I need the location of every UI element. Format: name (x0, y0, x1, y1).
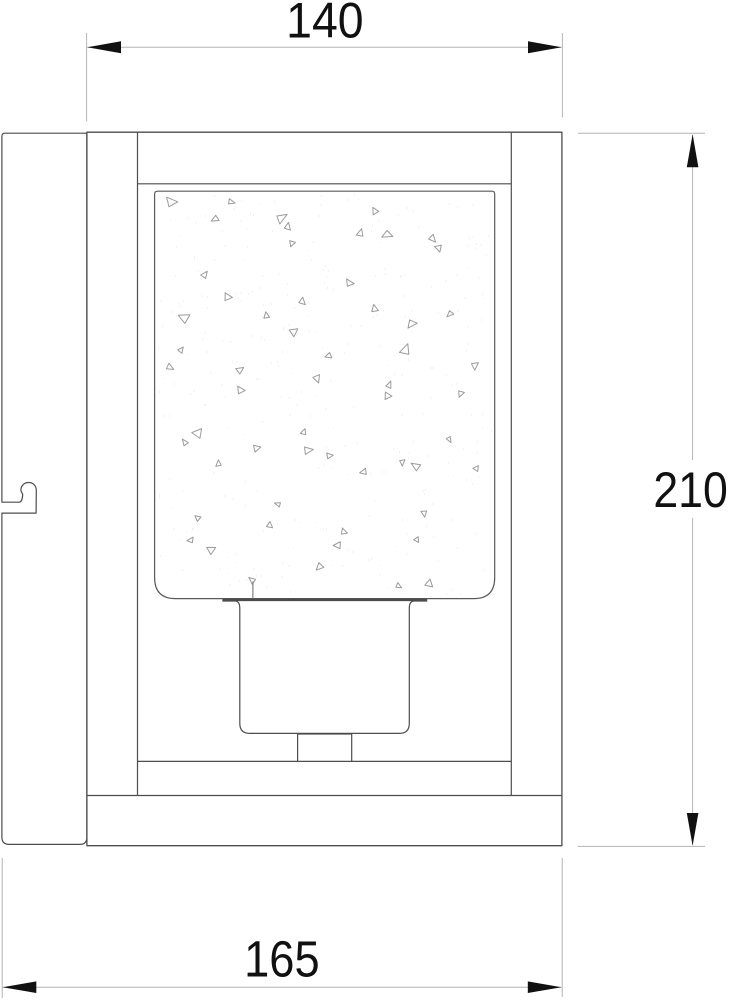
svg-text:210: 210 (653, 461, 728, 518)
svg-text:165: 165 (244, 930, 320, 987)
svg-text:140: 140 (286, 0, 364, 48)
